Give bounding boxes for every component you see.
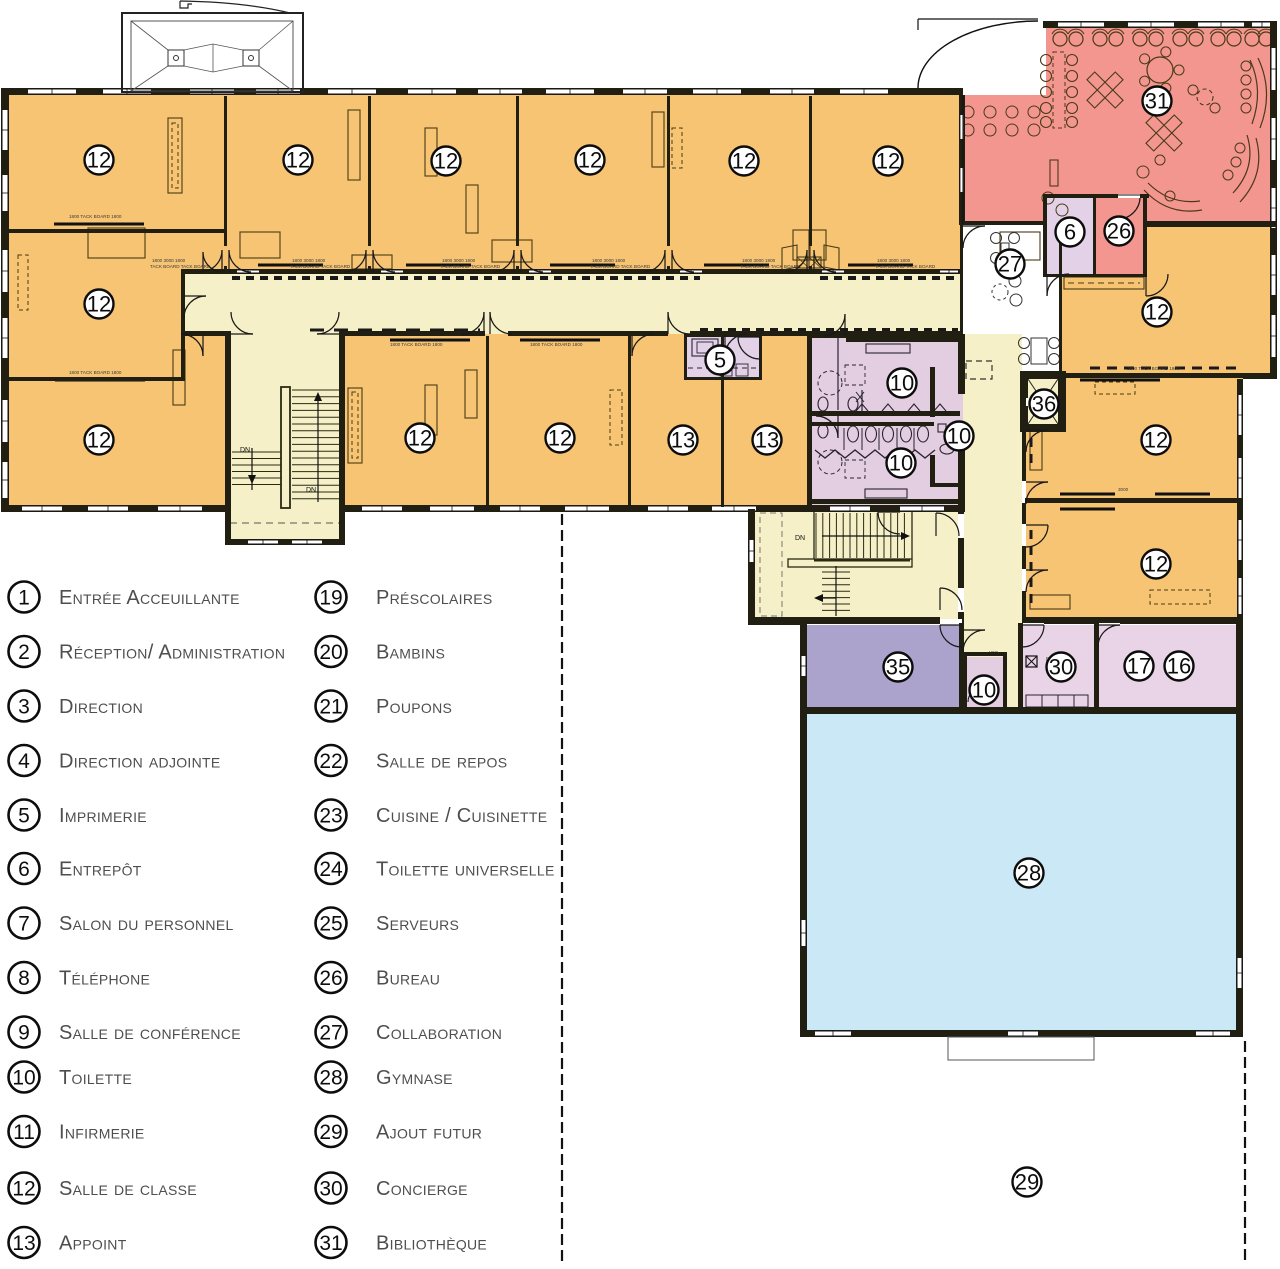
- svg-text:Bibliothèque: Bibliothèque: [376, 1233, 487, 1255]
- svg-text:Poupons: Poupons: [376, 696, 452, 718]
- svg-text:8: 8: [18, 967, 30, 990]
- svg-text:TACK BOARD TACK BOARD: TACK BOARD TACK BOARD: [875, 264, 936, 269]
- svg-text:Salle de repos: Salle de repos: [376, 751, 507, 773]
- svg-text:19: 19: [319, 587, 342, 610]
- svg-text:28: 28: [1017, 861, 1041, 886]
- svg-text:Concierge: Concierge: [376, 1178, 468, 1200]
- svg-text:DN: DN: [306, 487, 316, 494]
- svg-text:27: 27: [998, 252, 1022, 277]
- svg-text:13: 13: [755, 428, 779, 453]
- svg-text:21: 21: [319, 696, 342, 719]
- svg-text:Direction: Direction: [59, 696, 143, 718]
- svg-text:Gymnase: Gymnase: [376, 1067, 453, 1089]
- svg-text:29: 29: [1015, 1170, 1039, 1195]
- svg-text:12: 12: [876, 149, 900, 174]
- svg-text:9: 9: [18, 1022, 30, 1045]
- svg-text:10: 10: [890, 371, 914, 396]
- svg-text:1800 3000 1800: 1800 3000 1800: [742, 258, 776, 263]
- svg-text:12: 12: [578, 148, 602, 173]
- svg-text:Ajout futur: Ajout futur: [376, 1122, 482, 1144]
- svg-text:26: 26: [1107, 219, 1131, 244]
- svg-text:11: 11: [13, 1121, 35, 1144]
- svg-text:12: 12: [1144, 552, 1168, 577]
- svg-text:Appoint: Appoint: [59, 1233, 127, 1255]
- svg-text:31: 31: [1145, 89, 1169, 114]
- svg-text:1800 TACK BOARD 1800: 1800 TACK BOARD 1800: [1127, 366, 1180, 371]
- svg-text:Salon du personnel: Salon du personnel: [59, 913, 234, 935]
- svg-text:22: 22: [319, 750, 342, 773]
- svg-text:29: 29: [319, 1121, 342, 1144]
- svg-text:27: 27: [319, 1022, 342, 1045]
- svg-text:DN: DN: [795, 535, 805, 542]
- svg-text:7: 7: [18, 913, 30, 936]
- svg-text:12: 12: [12, 1178, 35, 1201]
- svg-text:12: 12: [87, 428, 111, 453]
- svg-text:16: 16: [1167, 654, 1191, 679]
- svg-text:30: 30: [319, 1178, 342, 1201]
- svg-text:5: 5: [714, 348, 726, 373]
- svg-text:1800 TACK BOARD 1800: 1800 TACK BOARD 1800: [530, 342, 583, 347]
- svg-text:12: 12: [1144, 428, 1168, 453]
- svg-text:3: 3: [18, 696, 30, 719]
- svg-text:Téléphone: Téléphone: [59, 968, 150, 990]
- svg-text:31: 31: [319, 1232, 342, 1255]
- svg-text:TACK BOARD TACK BOARD: TACK BOARD TACK BOARD: [740, 264, 801, 269]
- svg-text:Collaboration: Collaboration: [376, 1022, 502, 1044]
- svg-text:1800 TACK BOARD 1800: 1800 TACK BOARD 1800: [69, 370, 122, 375]
- svg-text:10: 10: [889, 451, 913, 476]
- svg-text:13: 13: [671, 428, 695, 453]
- svg-text:10: 10: [947, 424, 971, 449]
- svg-text:25: 25: [319, 913, 342, 936]
- svg-text:12: 12: [732, 149, 756, 174]
- svg-text:10: 10: [972, 678, 996, 703]
- svg-text:1800 TACK BOARD 1800: 1800 TACK BOARD 1800: [390, 342, 443, 347]
- svg-text:TACK BOARD TACK BOARD: TACK BOARD TACK BOARD: [150, 264, 211, 269]
- svg-text:Cuisine / Cuisinette: Cuisine / Cuisinette: [376, 805, 547, 827]
- svg-text:1800 3000 1800: 1800 3000 1800: [592, 258, 626, 263]
- svg-text:1800 3000 1800: 1800 3000 1800: [877, 258, 911, 263]
- svg-text:10: 10: [12, 1067, 35, 1090]
- svg-text:Salle de classe: Salle de classe: [59, 1178, 197, 1200]
- svg-text:20: 20: [319, 641, 342, 664]
- svg-text:12: 12: [286, 148, 310, 173]
- svg-text:TACK BOARD TACK BOARD: TACK BOARD TACK BOARD: [440, 264, 501, 269]
- svg-text:Infirmerie: Infirmerie: [59, 1122, 145, 1144]
- svg-text:3000: 3000: [1118, 487, 1129, 492]
- svg-text:12: 12: [408, 426, 432, 451]
- svg-text:36: 36: [1032, 392, 1056, 417]
- svg-text:Toilette universelle: Toilette universelle: [376, 859, 555, 881]
- svg-text:23: 23: [319, 805, 342, 828]
- svg-text:12: 12: [87, 292, 111, 317]
- svg-text:1800 3000 1800: 1800 3000 1800: [442, 258, 476, 263]
- svg-text:12: 12: [434, 149, 458, 174]
- svg-text:Imprimerie: Imprimerie: [59, 805, 147, 827]
- svg-text:28: 28: [319, 1067, 342, 1090]
- svg-text:26: 26: [319, 967, 342, 990]
- svg-text:Direction adjointe: Direction adjointe: [59, 751, 221, 773]
- svg-text:35: 35: [886, 655, 910, 680]
- svg-text:TACK BOARD TACK BOARD: TACK BOARD TACK BOARD: [590, 264, 651, 269]
- svg-text:13: 13: [12, 1232, 35, 1255]
- svg-text:17: 17: [1127, 654, 1151, 679]
- svg-text:Salle de conférence: Salle de conférence: [59, 1022, 241, 1044]
- svg-text:Toilette: Toilette: [59, 1067, 132, 1089]
- svg-text:1: 1: [18, 587, 30, 610]
- svg-text:Serveurs: Serveurs: [376, 913, 459, 935]
- svg-text:6: 6: [1064, 220, 1076, 245]
- svg-text:1800 TACK BOARD 1800: 1800 TACK BOARD 1800: [69, 214, 122, 219]
- svg-text:1800 3000 1800: 1800 3000 1800: [152, 258, 186, 263]
- svg-text:Préscolaires: Préscolaires: [376, 587, 493, 609]
- svg-text:24: 24: [319, 858, 343, 881]
- svg-text:4: 4: [18, 750, 30, 773]
- svg-text:Réception/ Administration: Réception/ Administration: [59, 642, 285, 664]
- svg-text:Entrée Acceuillante: Entrée Acceuillante: [59, 587, 240, 609]
- svg-text:Entrepôt: Entrepôt: [59, 859, 142, 881]
- svg-text:2: 2: [18, 641, 30, 664]
- svg-text:1800 3000 1800: 1800 3000 1800: [292, 258, 326, 263]
- svg-text:12: 12: [87, 148, 111, 173]
- svg-text:DN: DN: [240, 447, 250, 454]
- svg-text:12: 12: [1145, 300, 1169, 325]
- svg-text:Bambins: Bambins: [376, 642, 445, 664]
- svg-text:30: 30: [1049, 655, 1073, 680]
- svg-text:12: 12: [548, 426, 572, 451]
- svg-text:6: 6: [18, 858, 30, 881]
- svg-text:TACK BOARD TACK BOARD: TACK BOARD TACK BOARD: [290, 264, 351, 269]
- svg-text:Bureau: Bureau: [376, 968, 440, 990]
- svg-text:5: 5: [18, 805, 30, 828]
